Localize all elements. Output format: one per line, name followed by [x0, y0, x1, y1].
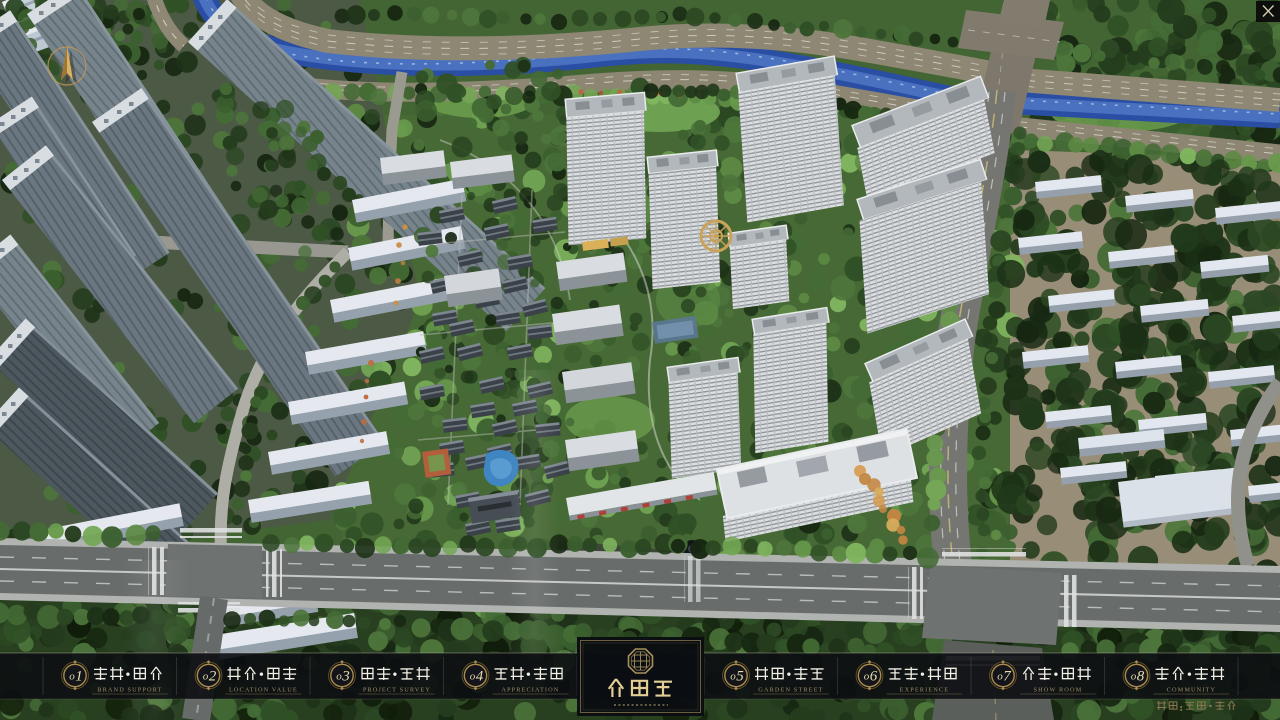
svg-text:APPRECIATION: APPRECIATION [501, 687, 559, 694]
svg-text:SHOW ROOM: SHOW ROOM [1034, 687, 1083, 694]
svg-text:4: 4 [476, 669, 484, 685]
svg-text:8: 8 [1137, 669, 1145, 685]
svg-text:3: 3 [341, 669, 350, 685]
svg-text:5: 5 [736, 669, 744, 685]
svg-text:PROJECT SURVEY: PROJECT SURVEY [363, 687, 431, 694]
svg-text:6: 6 [870, 669, 878, 685]
svg-text:LOCATION VALUE: LOCATION VALUE [229, 687, 298, 694]
svg-text:EXPERIENCE: EXPERIENCE [900, 687, 949, 694]
svg-text:2: 2 [209, 669, 217, 685]
svg-text:COMMUNITY: COMMUNITY [1167, 687, 1216, 694]
svg-text:1: 1 [75, 669, 83, 685]
svg-text:GARDEN STREET: GARDEN STREET [758, 687, 823, 694]
svg-text:BRAND SUPPORT: BRAND SUPPORT [97, 687, 162, 694]
